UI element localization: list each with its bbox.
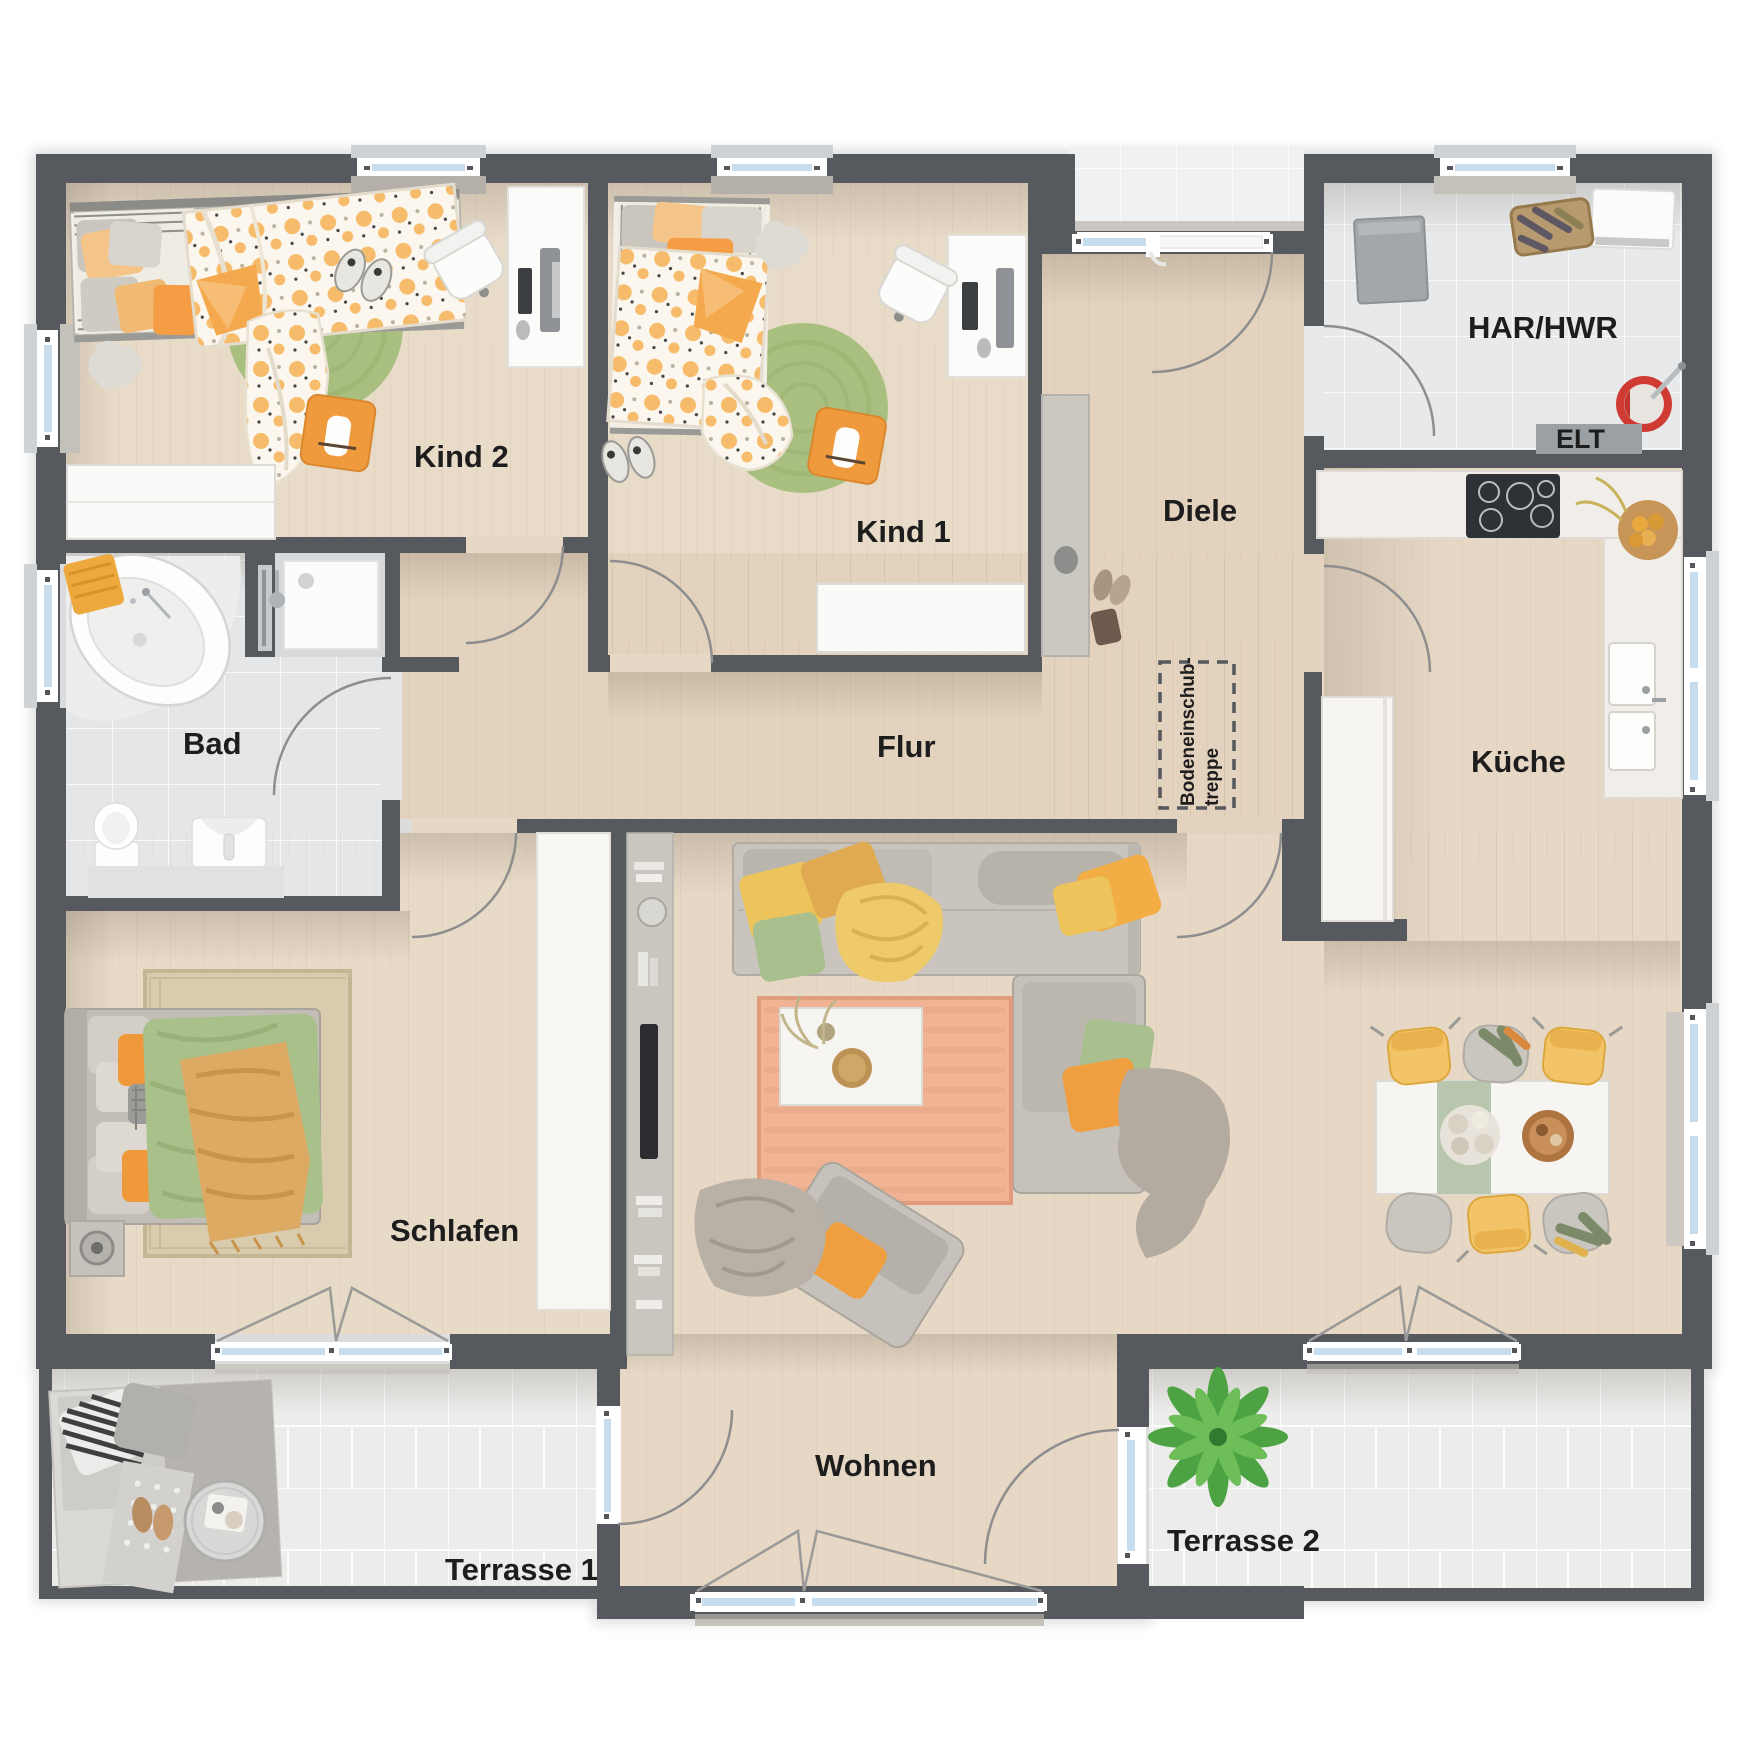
svg-text:Terrasse 1: Terrasse 1 — [445, 1552, 598, 1587]
svg-text:HAR/HWR: HAR/HWR — [1468, 310, 1618, 345]
svg-text:Bad: Bad — [183, 726, 242, 761]
svg-text:Kind 1: Kind 1 — [856, 514, 951, 549]
svg-text:Kind 2: Kind 2 — [414, 439, 509, 474]
svg-text:Schlafen: Schlafen — [390, 1213, 519, 1248]
svg-text:Wohnen: Wohnen — [815, 1448, 937, 1483]
svg-text:Diele: Diele — [1163, 493, 1237, 528]
svg-text:treppe: treppe — [1202, 748, 1223, 806]
svg-text:Terrasse 2: Terrasse 2 — [1167, 1523, 1320, 1558]
svg-text:ELT: ELT — [1556, 424, 1605, 454]
svg-text:Bodeneinschub-: Bodeneinschub- — [1178, 657, 1199, 806]
svg-text:Küche: Küche — [1471, 744, 1566, 779]
svg-text:Flur: Flur — [877, 729, 936, 764]
